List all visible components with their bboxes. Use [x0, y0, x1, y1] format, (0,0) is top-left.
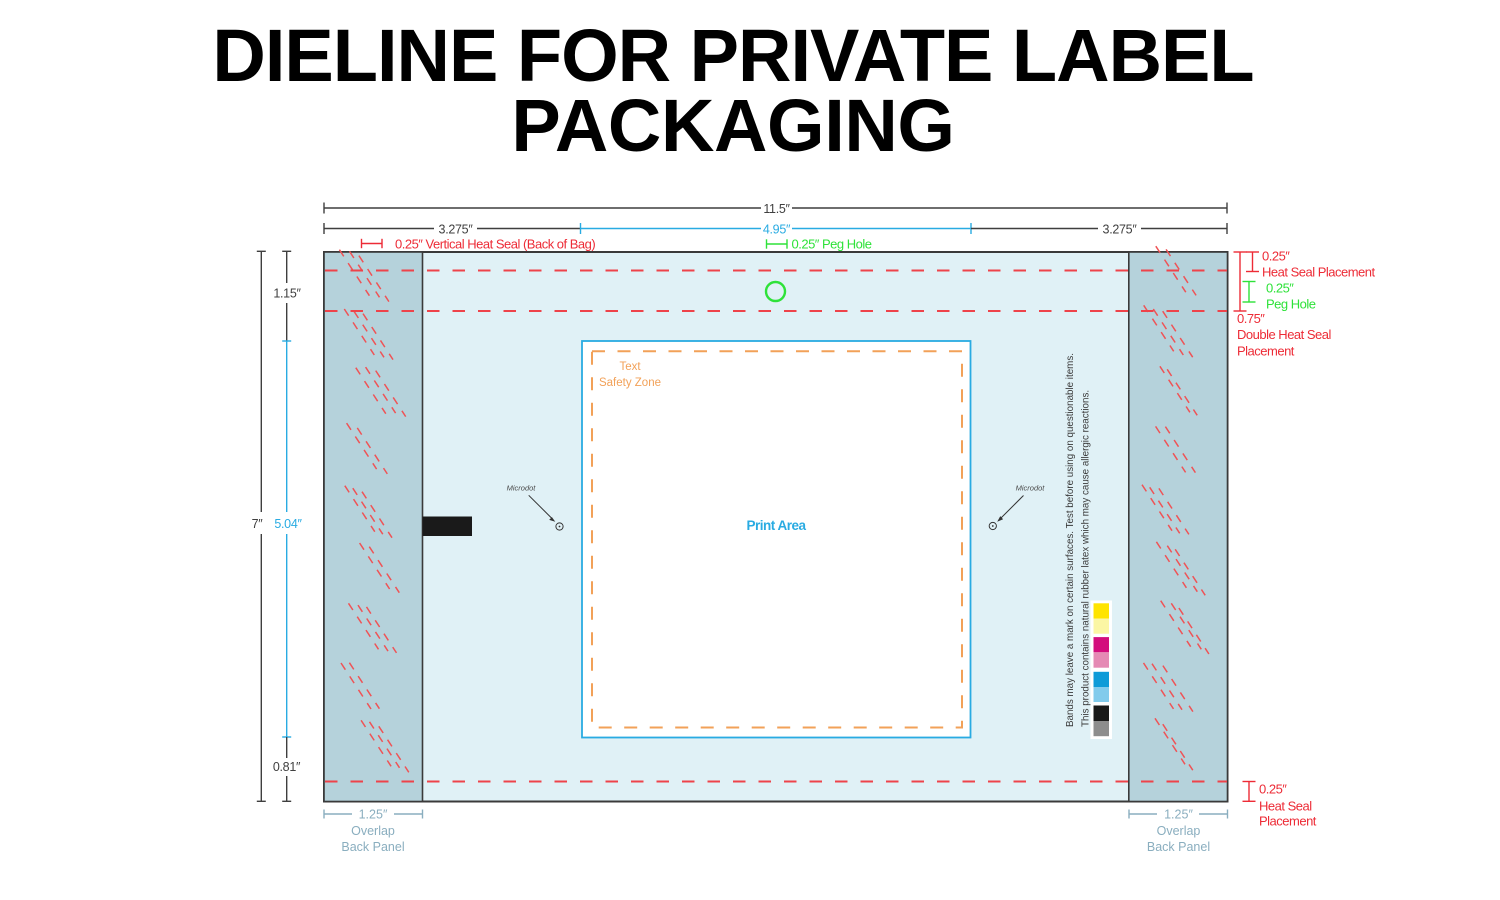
svg-text:Overlap: Overlap — [1157, 824, 1201, 838]
svg-text:0.81″: 0.81″ — [273, 760, 301, 774]
svg-text:11.5″: 11.5″ — [763, 202, 790, 216]
svg-text:1.25″: 1.25″ — [359, 808, 388, 822]
svg-text:Microdot: Microdot — [507, 484, 537, 493]
svg-text:Heat Seal Placement: Heat Seal Placement — [1262, 265, 1376, 280]
svg-text:7″: 7″ — [252, 517, 264, 531]
svg-text:This product contains natural: This product contains natural rubber lat… — [1081, 390, 1092, 727]
svg-text:Back Panel: Back Panel — [341, 840, 404, 854]
svg-text:0.25″: 0.25″ — [1266, 281, 1294, 296]
svg-text:Print Area: Print Area — [746, 518, 806, 533]
svg-text:Double Heat Seal: Double Heat Seal — [1237, 327, 1332, 342]
svg-text:Safety Zone: Safety Zone — [599, 377, 661, 389]
svg-text:Text: Text — [619, 361, 641, 373]
svg-text:4.95″: 4.95″ — [763, 222, 791, 236]
svg-text:1.25″: 1.25″ — [1164, 808, 1193, 822]
svg-text:0.75″: 0.75″ — [1237, 311, 1265, 326]
svg-text:Bands may leave a mark on cert: Bands may leave a mark on certain surfac… — [1065, 353, 1076, 727]
svg-text:Placement: Placement — [1237, 344, 1295, 359]
svg-text:5.04″: 5.04″ — [274, 517, 302, 531]
svg-text:3.275″: 3.275″ — [439, 222, 474, 236]
svg-text:Microdot: Microdot — [1016, 484, 1046, 493]
svg-text:1.15″: 1.15″ — [273, 287, 301, 301]
svg-text:3.275″: 3.275″ — [1103, 222, 1138, 236]
svg-text:Placement: Placement — [1259, 814, 1317, 829]
svg-text:0.25″: 0.25″ — [1262, 249, 1290, 264]
svg-text:Back Panel: Back Panel — [1147, 840, 1210, 854]
svg-text:Peg Hole: Peg Hole — [1266, 297, 1316, 312]
svg-text:0.25″ Vertical Heat Seal (Back: 0.25″ Vertical Heat Seal (Back of Bag) — [395, 237, 595, 252]
svg-text:0.25″ Peg Hole: 0.25″ Peg Hole — [792, 237, 872, 252]
svg-text:Heat Seal: Heat Seal — [1259, 799, 1312, 814]
svg-text:Overlap: Overlap — [351, 824, 395, 838]
svg-text:0.25″: 0.25″ — [1259, 782, 1287, 797]
